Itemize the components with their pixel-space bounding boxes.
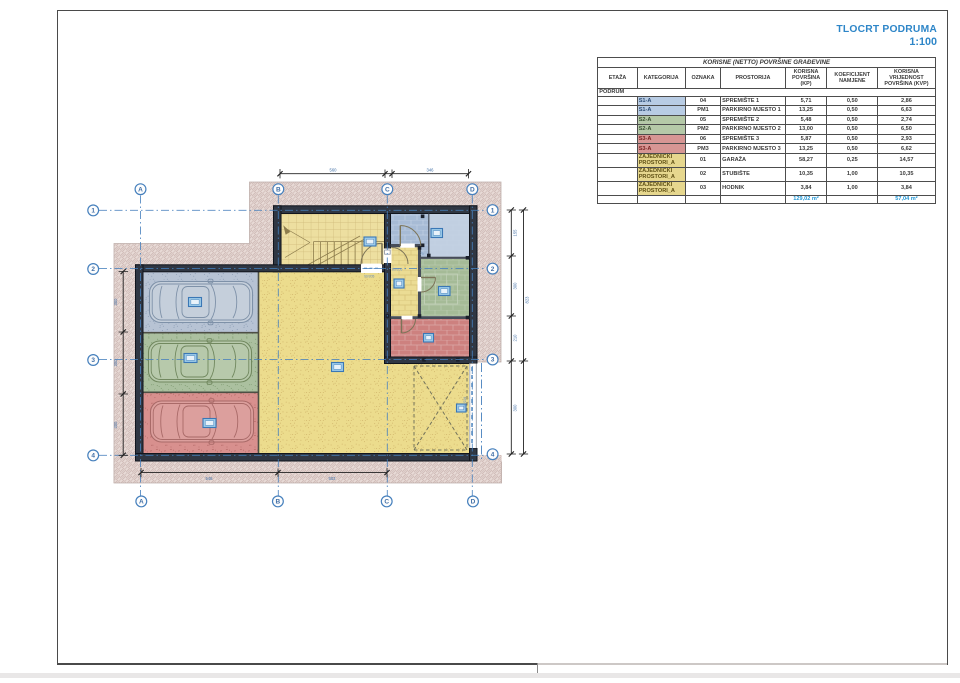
svg-text:90/205: 90/205 bbox=[364, 275, 374, 279]
svg-text:4: 4 bbox=[91, 453, 95, 460]
svg-text:A: A bbox=[138, 186, 143, 193]
svg-text:3: 3 bbox=[491, 357, 495, 364]
svg-text:D: D bbox=[470, 186, 475, 193]
svg-text:75: 75 bbox=[420, 252, 424, 256]
svg-text:300: 300 bbox=[113, 298, 118, 306]
svg-text:2: 2 bbox=[491, 266, 495, 273]
svg-text:286/226: 286/226 bbox=[463, 397, 467, 409]
svg-text:823: 823 bbox=[525, 296, 530, 304]
svg-text:1: 1 bbox=[91, 208, 95, 215]
svg-text:546: 546 bbox=[206, 476, 214, 481]
svg-text:346: 346 bbox=[427, 168, 435, 173]
svg-text:503: 503 bbox=[329, 476, 337, 481]
svg-text:300: 300 bbox=[513, 404, 518, 412]
svg-text:C: C bbox=[384, 499, 389, 506]
svg-text:B: B bbox=[276, 499, 281, 506]
svg-text:C: C bbox=[385, 186, 390, 193]
svg-text:210: 210 bbox=[513, 334, 518, 342]
svg-text:4: 4 bbox=[491, 451, 495, 458]
svg-text:300: 300 bbox=[513, 282, 518, 290]
svg-text:155: 155 bbox=[513, 229, 518, 237]
svg-text:1: 1 bbox=[491, 207, 495, 214]
svg-text:2: 2 bbox=[91, 266, 95, 273]
svg-text:80/205: 80/205 bbox=[392, 268, 402, 272]
svg-text:300: 300 bbox=[113, 359, 118, 367]
svg-text:3: 3 bbox=[91, 357, 95, 364]
svg-text:B: B bbox=[276, 186, 281, 193]
svg-text:560: 560 bbox=[330, 168, 338, 173]
svg-text:300: 300 bbox=[113, 421, 118, 429]
svg-text:A: A bbox=[139, 499, 144, 506]
svg-text:D: D bbox=[471, 499, 476, 506]
